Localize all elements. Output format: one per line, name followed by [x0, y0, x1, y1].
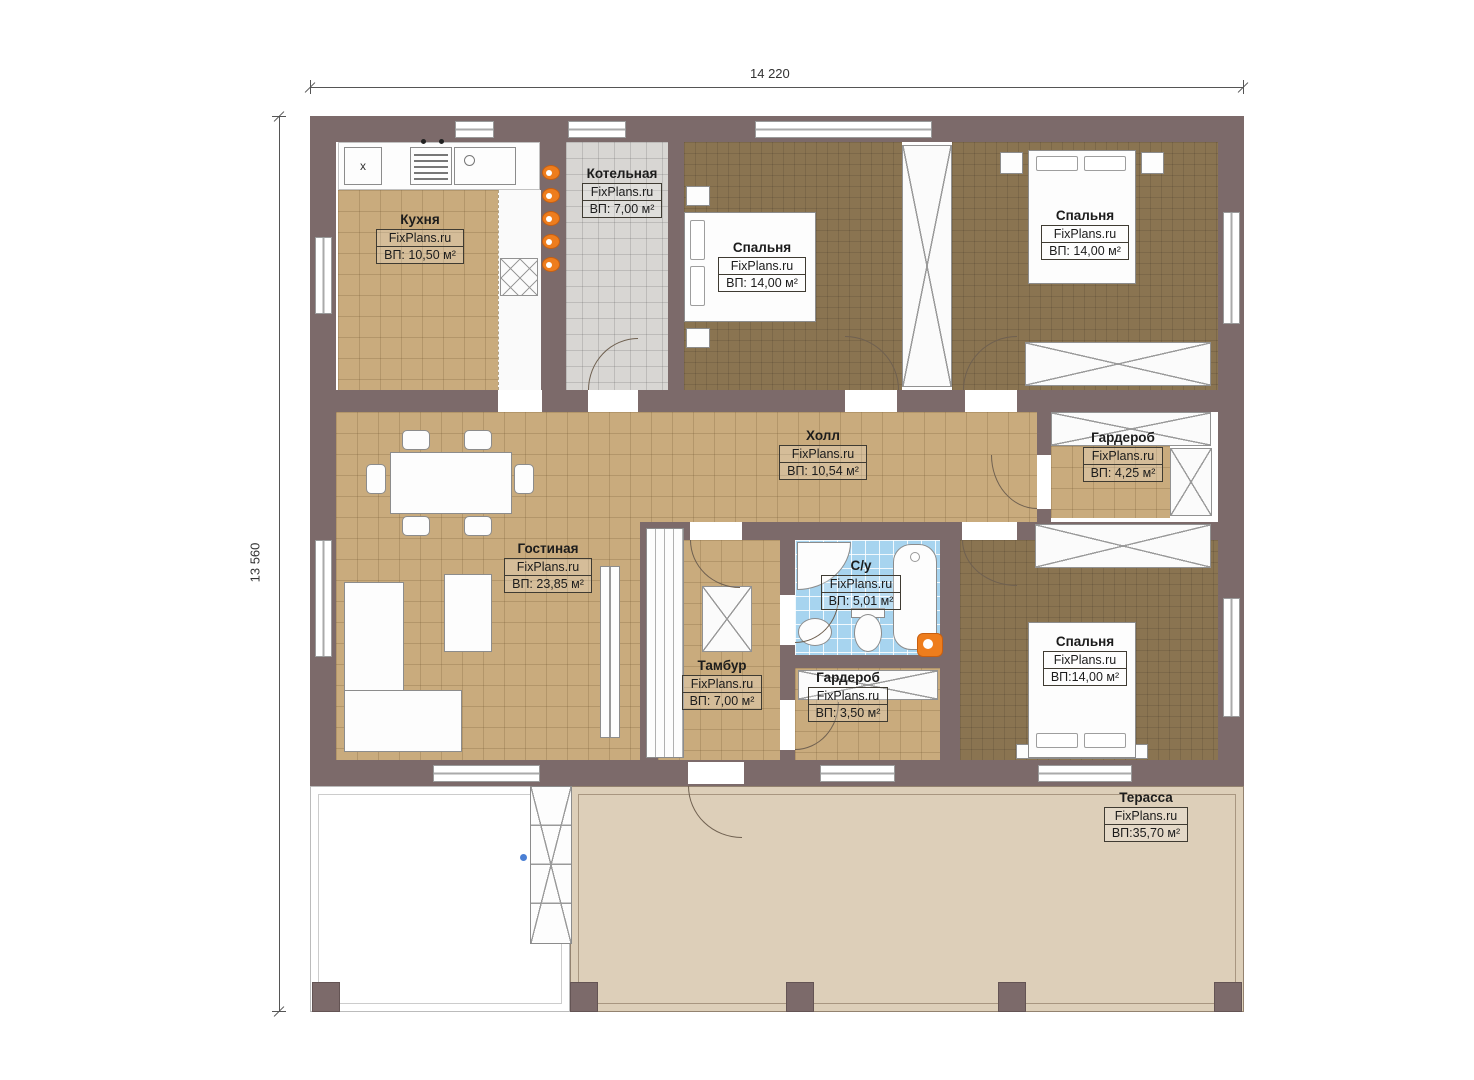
nightstand — [1141, 152, 1164, 174]
closet-bedroom2 — [1025, 342, 1211, 386]
area-text: ВП: 5,01 м² — [822, 593, 901, 609]
window-living-left — [315, 540, 332, 657]
window-bedroom2-right — [1223, 212, 1240, 324]
closet-wardrobe1-right — [1170, 448, 1212, 516]
pillow — [690, 220, 705, 260]
tv-panel — [600, 566, 620, 738]
door-sensor-dot-icon — [520, 854, 527, 861]
opening-bedroom3-door — [962, 522, 1017, 540]
area-text: ВП: 3,50 м² — [809, 705, 888, 721]
dining-chair — [402, 516, 430, 536]
stove — [410, 147, 452, 185]
area-text: ВП:14,00 м² — [1044, 669, 1126, 685]
kitchen-sink — [454, 147, 516, 185]
dining-table — [390, 452, 512, 514]
window-wardrobe2-bottom — [820, 765, 895, 782]
room-label-bedroom1: Спальня FixPlans.ru ВП: 14,00 м² — [712, 240, 812, 292]
wall-bathroom-bedroom3 — [940, 522, 960, 760]
area-text: ВП: 14,00 м² — [719, 275, 805, 291]
room-label-kitchen: Кухня FixPlans.ru ВП: 10,50 м² — [370, 212, 470, 264]
brand-text: FixPlans.ru — [377, 230, 463, 247]
fridge: x — [344, 147, 382, 185]
terrace-column — [998, 982, 1026, 1012]
nightstand — [1000, 152, 1023, 174]
radiator-icon — [542, 165, 560, 180]
opening-entrance-door — [688, 762, 744, 784]
brand-text: FixPlans.ru — [1044, 652, 1126, 669]
brand-text: FixPlans.ru — [505, 559, 591, 576]
brand-text: FixPlans.ru — [719, 258, 805, 275]
toilet — [854, 614, 882, 652]
closet-bedroom3 — [1035, 524, 1211, 568]
window-bedroom3-bottom — [1038, 765, 1132, 782]
window-kitchen-left — [315, 237, 332, 314]
opening-wardrobe2-door — [780, 700, 795, 750]
brand-text: FixPlans.ru — [583, 184, 662, 201]
brand-text: FixPlans.ru — [1084, 448, 1163, 465]
nightstand — [686, 186, 710, 206]
room-label-hall: Холл FixPlans.ru ВП: 10,54 м² — [773, 428, 873, 480]
nightstand — [686, 328, 710, 348]
opening-boiler-door — [588, 390, 638, 412]
room-label-bedroom3: Спальня FixPlans.ru ВП:14,00 м² — [1035, 634, 1135, 686]
radiator-icon — [542, 234, 560, 249]
pillow — [1084, 733, 1126, 748]
water-heater-dial-icon — [923, 639, 933, 649]
area-text: ВП: 23,85 м² — [505, 576, 591, 592]
room-label-terrace: Терасса FixPlans.ru ВП:35,70 м² — [1096, 790, 1196, 842]
dining-chair — [402, 430, 430, 450]
terrace-column — [786, 982, 814, 1012]
wall-exterior-left — [310, 116, 336, 786]
brand-text: FixPlans.ru — [1105, 808, 1187, 825]
vestibule-mat — [702, 586, 752, 652]
porch-column — [312, 982, 340, 1012]
brand-text: FixPlans.ru — [683, 676, 762, 693]
terrace-column — [570, 982, 598, 1012]
sink-tap-icon — [464, 155, 475, 166]
pillow — [1036, 156, 1078, 171]
radiator-icon — [542, 211, 560, 226]
area-text: ВП: 10,50 м² — [377, 247, 463, 263]
room-label-wardrobe2: Гардероб FixPlans.ru ВП: 3,50 м² — [798, 670, 898, 722]
room-label-vestibule: Тамбур FixPlans.ru ВП: 7,00 м² — [672, 658, 772, 710]
wall-hall-top — [336, 390, 1218, 412]
vestibule-closet — [646, 528, 684, 758]
pillow — [1084, 156, 1126, 171]
opening-bathroom-door — [780, 595, 795, 645]
room-label-living: Гостиная FixPlans.ru ВП: 23,85 м² — [498, 541, 598, 593]
dimension-width-label: 14 220 — [750, 66, 790, 81]
stove-knob-icon — [439, 139, 444, 144]
opening-vestibule-door — [690, 522, 742, 540]
bathtub-drain-icon — [910, 552, 920, 562]
stove-knob-icon — [421, 139, 426, 144]
dining-chair — [366, 464, 386, 494]
brand-text: FixPlans.ru — [822, 576, 901, 593]
dimension-height-line — [279, 116, 280, 1012]
opening-bedroom2-door — [965, 390, 1017, 412]
terrace-column — [1214, 982, 1242, 1012]
area-text: ВП: 10,54 м² — [780, 463, 866, 479]
brand-text: FixPlans.ru — [809, 688, 888, 705]
area-text: ВП:35,70 м² — [1105, 825, 1187, 841]
window-living-bottom — [433, 765, 540, 782]
dining-chair — [514, 464, 534, 494]
room-label-wardrobe1: Гардероб FixPlans.ru ВП: 4,25 м² — [1073, 430, 1173, 482]
area-text: ВП: 7,00 м² — [683, 693, 762, 709]
pillow — [1036, 733, 1078, 748]
opening-wardrobe1-door — [1037, 455, 1051, 509]
window-bedroom1-top — [755, 121, 932, 138]
porch-inner-line — [318, 794, 562, 1004]
dining-chair — [464, 430, 492, 450]
opening-kitchen-hall — [498, 390, 542, 412]
entrance-steps — [530, 786, 572, 944]
dimension-height-label: 13 560 — [247, 543, 262, 583]
area-text: ВП: 7,00 м² — [583, 201, 662, 217]
pillow — [690, 266, 705, 306]
room-label-boiler: Котельная FixPlans.ru ВП: 7,00 м² — [572, 166, 672, 218]
dining-chair — [464, 516, 492, 536]
radiator-icon — [542, 188, 560, 203]
coffee-table — [444, 574, 492, 652]
brand-text: FixPlans.ru — [1042, 226, 1128, 243]
radiator-icon — [542, 257, 560, 272]
floor-plan-canvas: 14 220 13 560 — [0, 0, 1474, 1080]
room-label-bedroom2: Спальня FixPlans.ru ВП: 14,00 м² — [1035, 208, 1135, 260]
opening-bedroom1-door — [845, 390, 897, 412]
brand-text: FixPlans.ru — [780, 446, 866, 463]
window-bedroom3-right — [1223, 598, 1240, 717]
appliance-symbol-icon — [500, 258, 538, 296]
window-kitchen-top — [455, 121, 494, 138]
sofa-section-horizontal — [344, 690, 462, 752]
area-text: ВП: 14,00 м² — [1042, 243, 1128, 259]
dimension-width-line — [310, 87, 1244, 88]
closet-between-bedrooms — [902, 145, 952, 387]
room-label-bathroom: С/у FixPlans.ru ВП: 5,01 м² — [811, 558, 911, 610]
wall-bathroom-wardrobe2 — [795, 655, 940, 668]
area-text: ВП: 4,25 м² — [1084, 465, 1163, 481]
window-boiler-top — [568, 121, 626, 138]
